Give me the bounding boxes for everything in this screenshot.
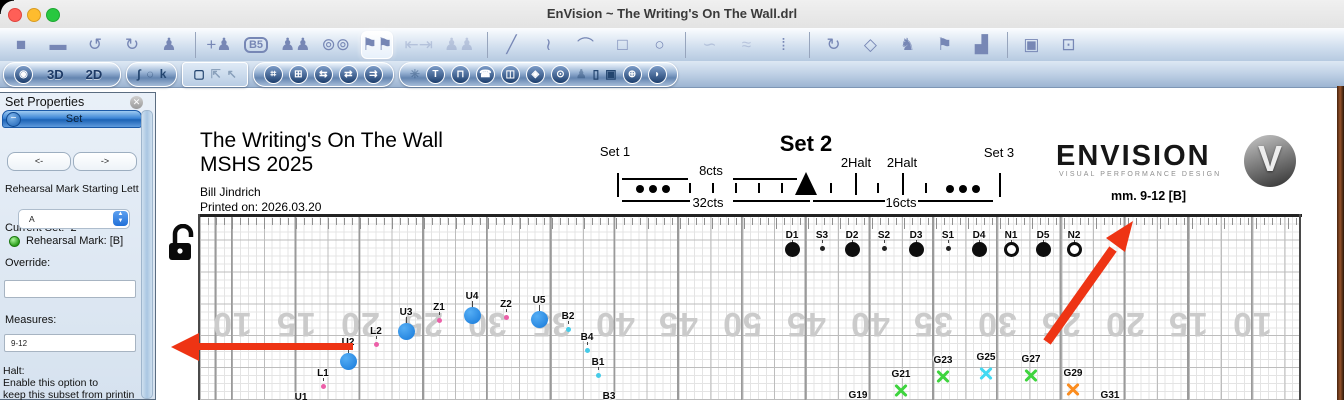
phone-tool-icon: ☎ [476, 65, 495, 84]
performer-label: L2 [361, 326, 391, 337]
secondary-toolbar: ◉3D2D∫◌k▢⇱↖⌗⊞⇆⇄⇉✳T⊓☎◫◈⊙♟▯▣⊕◗ [0, 61, 1344, 88]
timeline-bar [617, 173, 619, 197]
step-tick [712, 218, 713, 229]
step-tick [1240, 218, 1241, 225]
rehearsal-mark-dropdown[interactable]: A ▲▼ [18, 209, 130, 229]
toolbar-group: ◉3D2D [3, 62, 121, 87]
count-performers-icon: ⊚⊚ [321, 35, 350, 55]
step-tick [848, 218, 849, 225]
step-tick [1216, 218, 1217, 225]
performer-label: G19 [843, 390, 873, 400]
performer-dot[interactable] [909, 242, 924, 257]
redo-icon: ↻ [125, 35, 139, 55]
step-tick [432, 218, 433, 225]
step-tick [216, 218, 217, 225]
performer-dot[interactable] [398, 323, 415, 340]
mode-2d-button[interactable]: 2D [78, 67, 111, 82]
step-tick [232, 218, 233, 229]
step-tick [280, 218, 281, 225]
step-tick [776, 218, 777, 229]
step-tick [360, 218, 361, 229]
step-tick [856, 218, 857, 225]
next-set-button[interactable]: -> [73, 152, 137, 171]
step-tick [968, 218, 969, 229]
timeline-dot [636, 185, 644, 193]
step-tick [736, 218, 737, 225]
paired-performers-icon: ♟♟ [444, 35, 474, 55]
toolbar-group: ✳T⊓☎◫◈⊙♟▯▣⊕◗ [399, 62, 678, 87]
step-tick [1048, 218, 1049, 225]
collapse-section-button[interactable]: − [6, 112, 21, 127]
step-tick [840, 218, 841, 229]
open-file-button[interactable]: ▬ [45, 32, 71, 58]
toolbar-group: ∫◌k [126, 62, 177, 87]
page-tool-icon: ▯ [593, 67, 600, 81]
uniform-view-button[interactable]: ♞ [894, 32, 920, 58]
rotate-form-icon: ↻ [826, 35, 840, 55]
curve-tool-button[interactable]: ≀ [535, 32, 561, 58]
performer-label: Z2 [491, 299, 521, 310]
text-tool-button[interactable]: T [426, 65, 445, 84]
performer-label: U2 [333, 337, 363, 348]
circle-tool-button[interactable]: ○ [646, 32, 672, 58]
section-header-label: Set [21, 113, 127, 125]
measures-range-label: mm. 9-12 [B] [1056, 189, 1241, 203]
performer-dot[interactable] [437, 318, 442, 323]
performer-tool-button[interactable]: k [160, 67, 167, 81]
show-title: The Writing's On The Wall [200, 129, 443, 153]
step-tick [632, 218, 633, 225]
step-tick [800, 218, 801, 225]
pan-tool-button[interactable]: ∫ [137, 67, 140, 81]
step-tick [344, 218, 345, 225]
step-tick [656, 218, 657, 225]
performer-dot[interactable] [946, 246, 951, 251]
step-tick [672, 218, 673, 225]
phone-tool-button[interactable]: ☎ [476, 65, 495, 84]
performer-dot[interactable] [785, 242, 800, 257]
set-properties-panel: Set Properties ✕ − Set Current Set: 2 <-… [0, 92, 156, 400]
step-tick [552, 218, 553, 229]
step-tick [384, 218, 385, 225]
performer-label: B2 [553, 311, 583, 322]
step-tick [1144, 218, 1145, 225]
performer-label: D2 [837, 230, 867, 241]
performer-dot[interactable] [464, 307, 481, 324]
halt-help-line2: keep this subset from printin [3, 389, 134, 400]
swap-performers-button[interactable]: ⇤⇥ [404, 32, 433, 58]
step-tick [472, 218, 473, 225]
step-tick [624, 218, 625, 225]
step-tick [880, 218, 881, 225]
step-tick [416, 218, 417, 225]
line-tool-button[interactable]: ╱ [498, 32, 524, 58]
step-tick [728, 218, 729, 225]
step-tick [1008, 218, 1009, 225]
step-tick [1040, 218, 1041, 225]
step-tick [1120, 218, 1121, 225]
timeline-tick [689, 183, 691, 193]
step-tick [208, 218, 209, 225]
step-tick [1056, 218, 1057, 225]
step-tick [1176, 218, 1177, 225]
director-podium-icon: ♟ [161, 35, 176, 55]
stands-tool-button[interactable]: ▟ [968, 32, 994, 58]
step-tick [304, 218, 305, 225]
step-tick [1128, 218, 1129, 229]
flag-tool-button[interactable]: ⚑ [931, 32, 957, 58]
step-tick [576, 218, 577, 225]
step-tick [424, 218, 425, 229]
override-label: Override: [5, 257, 50, 269]
performer-label: D3 [901, 230, 931, 241]
unlock-icon[interactable] [166, 224, 200, 262]
step-tick [256, 218, 257, 225]
drill-charts-button[interactable]: ⚑⚑ [361, 31, 393, 59]
contract-form-button[interactable]: ⇄ [339, 65, 358, 84]
halt-label: Halt: [3, 365, 25, 377]
performer-x-marker[interactable] [1024, 368, 1038, 382]
diamond-view-icon: ◈ [526, 65, 545, 84]
performer-dot[interactable] [1036, 242, 1051, 257]
measures-label: Measures: [5, 314, 56, 326]
timeline-line [733, 200, 810, 202]
step-tick [1152, 218, 1153, 225]
lasso-tool-icon: ◌ [147, 67, 154, 81]
timeline-position-marker [795, 172, 817, 195]
performer-dot[interactable] [882, 246, 887, 251]
performer-label: U1 [286, 392, 316, 400]
door-tool-button[interactable]: ◫ [501, 65, 520, 84]
toolbar-separator [685, 32, 686, 58]
expand-form-icon: ⇆ [314, 65, 333, 84]
page-tool-button[interactable]: ▯ [593, 67, 600, 81]
yard-number: 45 [774, 304, 838, 343]
performer-label: G27 [1016, 354, 1046, 365]
add-performer-icon: +♟ [206, 35, 231, 55]
monitor-view-button[interactable]: ⊡ [1055, 32, 1081, 58]
video-camera-button[interactable]: ▣ [605, 67, 616, 81]
performer-label: U4 [457, 291, 487, 302]
box-tool-icon: □ [617, 35, 627, 55]
toolbar-group: ▢⇱↖ [182, 62, 247, 87]
step-tick [480, 218, 481, 225]
snake-tool-icon: ≈ [742, 35, 751, 55]
cursor-tool-button[interactable]: ↖ [227, 67, 237, 81]
ensemble-group-button[interactable]: ♟♟ [280, 32, 310, 58]
mode-3d-icon: 3D [47, 67, 64, 82]
performer-label: G23 [928, 355, 958, 366]
performer-dot[interactable] [340, 353, 357, 370]
stands-view-button[interactable]: ⊓ [451, 65, 470, 84]
prev-set-button[interactable]: <- [7, 152, 71, 171]
timeline-dot [972, 185, 980, 193]
step-tick [512, 218, 513, 225]
timeline-set1-label: Set 1 [585, 144, 645, 159]
performer-dot[interactable] [585, 348, 590, 353]
line-tool-icon: ╱ [506, 35, 516, 55]
step-tick [872, 218, 873, 229]
yard-number: 25 [1029, 304, 1093, 343]
director-podium-button[interactable]: ♟ [156, 32, 182, 58]
select-rect-button[interactable]: ▢ [193, 67, 204, 81]
timeline-bar [855, 173, 857, 195]
select-arrow-icon: ⇱ [211, 67, 221, 81]
step-tick [312, 218, 313, 225]
snake-tool-button[interactable]: ≈ [733, 32, 759, 58]
step-tick [328, 218, 329, 229]
step-tick [1016, 218, 1017, 225]
step-tick [1136, 218, 1137, 225]
redo-button[interactable]: ↻ [119, 32, 145, 58]
performer-label: S1 [933, 230, 963, 241]
yard-number: 35 [901, 304, 965, 343]
paired-performers-button[interactable]: ♟♟ [444, 32, 474, 58]
dropdown-value: A [29, 214, 35, 224]
performer-label: B1 [583, 357, 613, 368]
step-tick [544, 218, 545, 225]
step-tick [288, 218, 289, 225]
step-tick [1296, 218, 1297, 225]
step-tick [992, 218, 993, 225]
logo-wordmark: ENVISION [1056, 140, 1211, 173]
panel-scrollbar[interactable] [141, 110, 153, 399]
toolbar-separator [1007, 32, 1008, 58]
step-tick [680, 218, 681, 229]
step-tick [272, 218, 273, 225]
performer-label: U3 [391, 307, 421, 318]
step-tick [608, 218, 609, 225]
step-tick [912, 218, 913, 225]
performer-x-marker[interactable] [936, 369, 950, 383]
performer-label: N2 [1059, 230, 1089, 241]
follow-curve-button[interactable]: ∽ [696, 32, 722, 58]
step-tick [600, 218, 601, 225]
step-tick [832, 218, 833, 225]
undo-button[interactable]: ↺ [82, 32, 108, 58]
grid-snap-button[interactable]: ⊞ [289, 65, 308, 84]
performer-label: D1 [777, 230, 807, 241]
override-input[interactable] [4, 280, 136, 298]
undo-icon: ↺ [88, 35, 102, 55]
step-tick [1168, 218, 1169, 225]
follow-curve-icon: ∽ [702, 35, 716, 55]
timeline-dot [946, 185, 954, 193]
monitor-view-icon: ⊡ [1061, 35, 1075, 55]
panel-title: Set Properties [5, 95, 84, 109]
performer-label: B3 [594, 391, 624, 400]
step-tick [648, 218, 649, 229]
performer-dot[interactable] [845, 242, 860, 257]
door-tool-icon: ◫ [501, 65, 520, 84]
step-tick [752, 218, 753, 225]
performer-label: S3 [807, 230, 837, 241]
step-tick [784, 218, 785, 225]
step-tick [1080, 218, 1081, 225]
performer-dot[interactable] [321, 384, 326, 389]
mode-2d-icon: 2D [86, 67, 103, 82]
fan-view-button[interactable]: ◗ [648, 65, 667, 84]
step-tick [1208, 218, 1209, 225]
performer-x-marker[interactable] [894, 383, 908, 397]
step-tick [1248, 218, 1249, 225]
swap-performers-icon: ⇤⇥ [404, 35, 433, 55]
step-tick [616, 218, 617, 229]
step-tick [352, 218, 353, 225]
power-tool-icon: ⊙ [551, 65, 570, 84]
performer-dot[interactable] [820, 246, 825, 251]
timeline-set2-label: Set 2 [756, 131, 856, 157]
performer-dot[interactable] [531, 311, 548, 328]
performer-label: D5 [1028, 230, 1058, 241]
performer-dot[interactable] [1067, 242, 1082, 257]
step-tick [1264, 218, 1265, 225]
performer-label: B4 [572, 332, 602, 343]
title-bar: EnVision ~ The Writing's On The Wall.drl [0, 0, 1344, 29]
timeline-dot [649, 185, 657, 193]
cursor-tool-icon: ↖ [227, 67, 237, 81]
print-button[interactable]: ◉ [14, 65, 33, 84]
performer-dot[interactable] [972, 242, 987, 257]
count-performers-button[interactable]: ⊚⊚ [321, 32, 350, 58]
step-tick [1280, 218, 1281, 225]
film-camera-icon: ▣ [1023, 35, 1039, 55]
new-file-button[interactable]: ■ [8, 32, 34, 58]
arc-tool-button[interactable]: ⌒ [572, 32, 598, 58]
timeline-tick [830, 183, 832, 193]
printed-on: Printed on: 2026.03.20 [200, 200, 321, 214]
yard-grid-button[interactable]: ⌗ [264, 65, 283, 84]
diamond-view-button[interactable]: ◈ [526, 65, 545, 84]
new-file-icon: ■ [16, 35, 26, 55]
timeline-tick [877, 183, 879, 193]
stepper-icon[interactable]: ▲▼ [113, 211, 128, 226]
step-tick [464, 218, 465, 225]
yard-number: 45 [646, 304, 710, 343]
select-arrow-button[interactable]: ⇱ [211, 67, 221, 81]
measures-input[interactable] [4, 334, 136, 352]
rotate-form-button[interactable]: ↻ [820, 32, 846, 58]
step-tick [400, 218, 401, 225]
performer-label: N1 [996, 230, 1026, 241]
logo-tagline: VISUAL PERFORMANCE DESIGN [1059, 171, 1221, 178]
label-b5-button[interactable]: B5 [243, 32, 269, 58]
performer-dot[interactable] [374, 342, 379, 347]
text-tool-icon: T [426, 65, 445, 84]
step-tick [952, 218, 953, 225]
performer-dot[interactable] [596, 373, 601, 378]
ensemble-name: MSHS 2025 [200, 153, 313, 177]
timeline-dot [662, 185, 670, 193]
timeline-16cts-label: 16cts [871, 195, 931, 210]
rehearsal-mark-label: Rehearsal Mark Starting Lett [5, 183, 139, 195]
timeline-line [733, 178, 797, 180]
yard-number: 50 [710, 304, 774, 343]
step-tick [816, 218, 817, 225]
timeline-tick [925, 183, 927, 193]
step-tick [808, 218, 809, 229]
performer-tool-icon: k [160, 67, 167, 81]
timeline-8cts-label: 8cts [681, 163, 741, 178]
step-tick [960, 218, 961, 225]
stands-tool-icon: ▟ [975, 35, 988, 55]
step-tick [1112, 218, 1113, 225]
props-tool-button[interactable]: ♟ [576, 67, 587, 81]
set-section-header[interactable]: − Set [2, 110, 142, 128]
step-tick [1288, 218, 1289, 229]
add-camera-button[interactable]: ⊕ [623, 65, 642, 84]
uniform-view-icon: ♞ [900, 35, 915, 55]
step-tick [568, 218, 569, 225]
timeline-set3-label: Set 3 [969, 145, 1029, 160]
timeline-tick [735, 183, 737, 193]
timeline-tick [781, 183, 783, 193]
performer-dot[interactable] [504, 315, 509, 320]
performer-dot[interactable] [1004, 242, 1019, 257]
step-tick [896, 218, 897, 225]
curve-tool-icon: ≀ [545, 35, 551, 55]
video-camera-icon: ▣ [605, 67, 616, 81]
step-tick [744, 218, 745, 229]
add-performer-button[interactable]: +♟ [206, 32, 232, 58]
step-tick [504, 218, 505, 225]
performer-label: L1 [308, 368, 338, 379]
expand-form-button[interactable]: ⇆ [314, 65, 333, 84]
step-tick [792, 218, 793, 225]
window-title: EnVision ~ The Writing's On The Wall.drl [0, 6, 1344, 21]
close-panel-button[interactable]: ✕ [130, 96, 143, 109]
performer-label: S2 [869, 230, 899, 241]
burst-tool-button[interactable]: ✳ [410, 67, 420, 81]
step-tick [696, 218, 697, 225]
step-tick [976, 218, 977, 225]
timeline-line [622, 200, 690, 202]
timeline-bar [902, 173, 904, 195]
step-tick [336, 218, 337, 225]
power-tool-button[interactable]: ⊙ [551, 65, 570, 84]
lasso-tool-button[interactable]: ◌ [147, 67, 154, 81]
performer-label: G21 [886, 369, 916, 380]
step-tick [688, 218, 689, 225]
step-tick [1032, 218, 1033, 229]
performer-dot[interactable] [566, 327, 571, 332]
mode-3d-button[interactable]: 3D [39, 67, 72, 82]
step-align-button[interactable]: ⇉ [364, 65, 383, 84]
step-tick [704, 218, 705, 225]
yard-number: 10 [200, 304, 264, 343]
performer-label: U5 [524, 295, 554, 306]
step-tick [1272, 218, 1273, 225]
box-tool-button[interactable]: □ [609, 32, 635, 58]
step-tick [1104, 218, 1105, 225]
performer-x-marker[interactable] [979, 366, 993, 380]
field-right-border [1299, 214, 1301, 400]
tilt-form-button[interactable]: ◇ [857, 32, 883, 58]
left-arrow-head [171, 333, 199, 361]
film-camera-button[interactable]: ▣ [1018, 32, 1044, 58]
yard-grid-icon: ⌗ [264, 65, 283, 84]
interval-tool-button[interactable]: ⁞ [770, 32, 796, 58]
burst-tool-icon: ✳ [410, 67, 420, 81]
author-name: Bill Jindrich [200, 185, 261, 199]
step-tick [592, 218, 593, 225]
screen-corner [0, 0, 14, 14]
performer-x-marker[interactable] [1066, 382, 1080, 396]
timeline-tick [758, 183, 760, 193]
timeline-tick [712, 183, 714, 193]
step-tick [664, 218, 665, 225]
timeline-line [813, 200, 885, 202]
